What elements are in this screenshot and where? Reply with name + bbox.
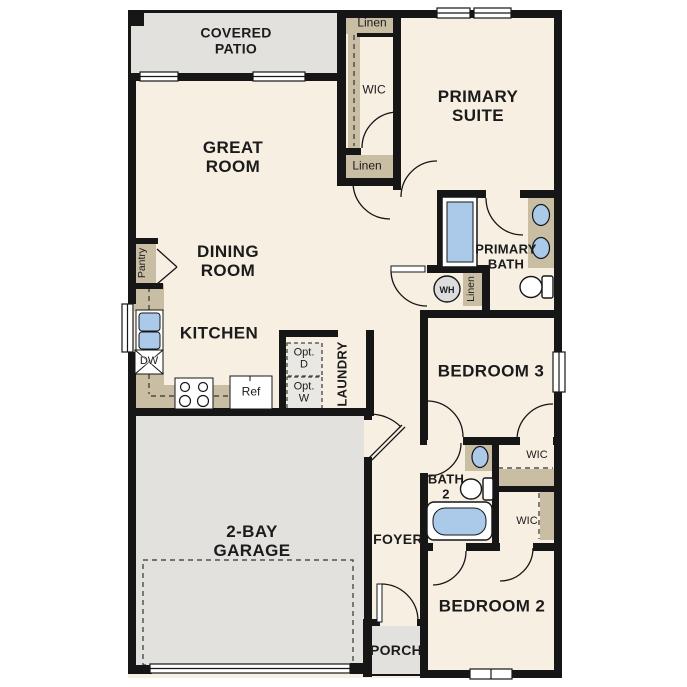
room-label-kitchen: KITCHEN	[180, 323, 258, 342]
burner	[198, 396, 209, 407]
wic-shelf	[540, 492, 555, 540]
vanity-sink	[533, 205, 550, 226]
toilet-tank	[542, 276, 553, 298]
closet-label-wic-bedroom2: WIC	[516, 515, 537, 527]
room-label-garage: 2-BAYGARAGE	[213, 522, 290, 560]
room-label-dining-room: DININGROOM	[197, 242, 259, 280]
dishwasher-label: DW	[140, 355, 158, 367]
room-label-bath2: BATH2	[428, 472, 464, 501]
room-label-bedroom3: BEDROOM 3	[438, 361, 545, 380]
shower	[447, 202, 473, 262]
burner	[181, 383, 190, 392]
room-label-laundry: LAUNDRY	[336, 341, 351, 406]
closet-label-pantry: Pantry	[137, 248, 149, 278]
water-heater-label: WH	[440, 285, 455, 295]
kitchen-sink	[139, 313, 160, 331]
toilet-tank	[483, 478, 493, 500]
closet-label-linen-utility: Linen	[466, 276, 478, 302]
toilet	[520, 277, 542, 298]
room-label-primary-bath: PRIMARYBATH	[475, 242, 537, 271]
room-label-great-room: GREATROOM	[203, 138, 263, 176]
room-label-foyer: FOYER	[373, 532, 423, 548]
closet-label-linen-top: Linen	[357, 16, 386, 29]
burner	[199, 383, 208, 392]
front-door-leaf	[377, 584, 382, 622]
refrigerator-label: Ref	[242, 385, 261, 398]
closet-label-wic-primary: WIC	[362, 83, 385, 96]
closet-label-linen-hall: Linen	[352, 159, 381, 172]
floor-plan: COVEREDPATIO GREATROOM DININGROOM KITCHE…	[0, 0, 687, 687]
door-leaf	[391, 266, 425, 272]
room-label-primary-suite: PRIMARYSUITE	[438, 87, 519, 125]
optional-dryer-label: Opt.D	[294, 347, 315, 372]
burner	[180, 396, 191, 407]
bathroom-sink	[472, 447, 488, 468]
optional-washer-label: Opt.W	[294, 381, 315, 406]
room-label-porch: PORCH	[370, 643, 422, 659]
bathtub-basin	[433, 508, 486, 535]
wic-shelf	[497, 469, 555, 487]
closet-label-wic-bedroom3: WIC	[526, 449, 547, 461]
room-label-bedroom2: BEDROOM 2	[439, 596, 546, 615]
room-label-covered-patio: COVEREDPATIO	[200, 25, 271, 56]
kitchen-sink	[139, 332, 160, 349]
